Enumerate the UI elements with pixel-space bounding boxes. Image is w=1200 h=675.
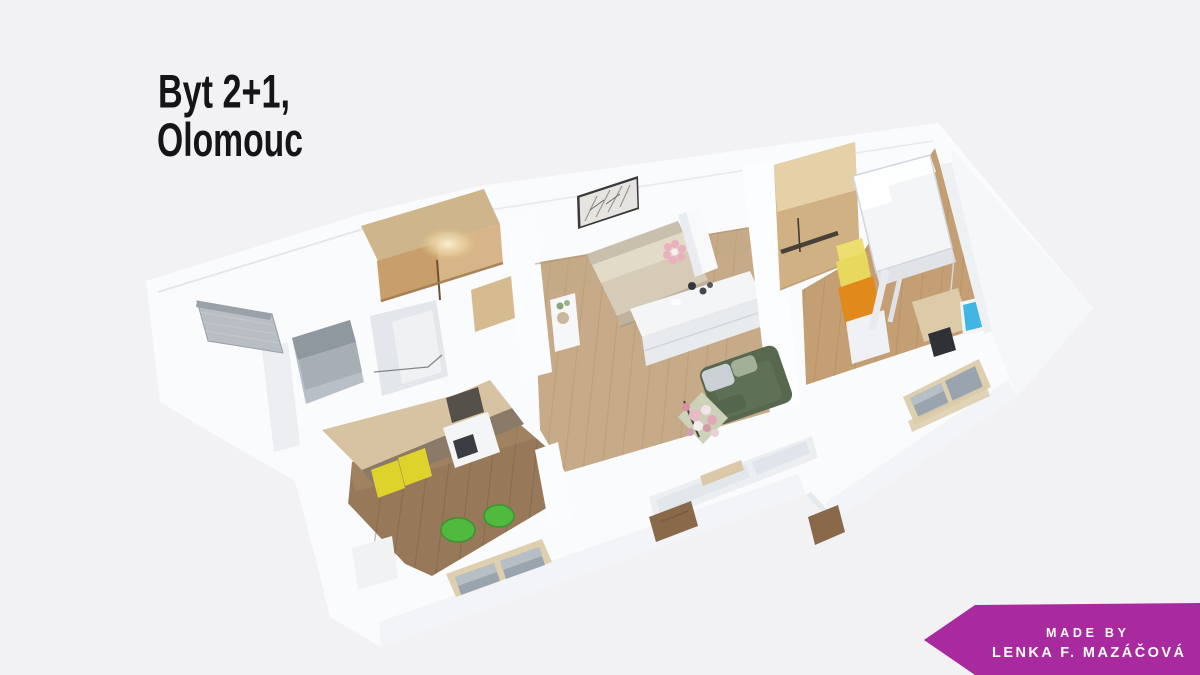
svg-text:Byt 2+1,: Byt 2+1, [158, 65, 290, 118]
svg-text:LENKA F. MAZÁČOVÁ: LENKA F. MAZÁČOVÁ [992, 643, 1185, 661]
svg-text:Olomouc: Olomouc [157, 113, 303, 166]
